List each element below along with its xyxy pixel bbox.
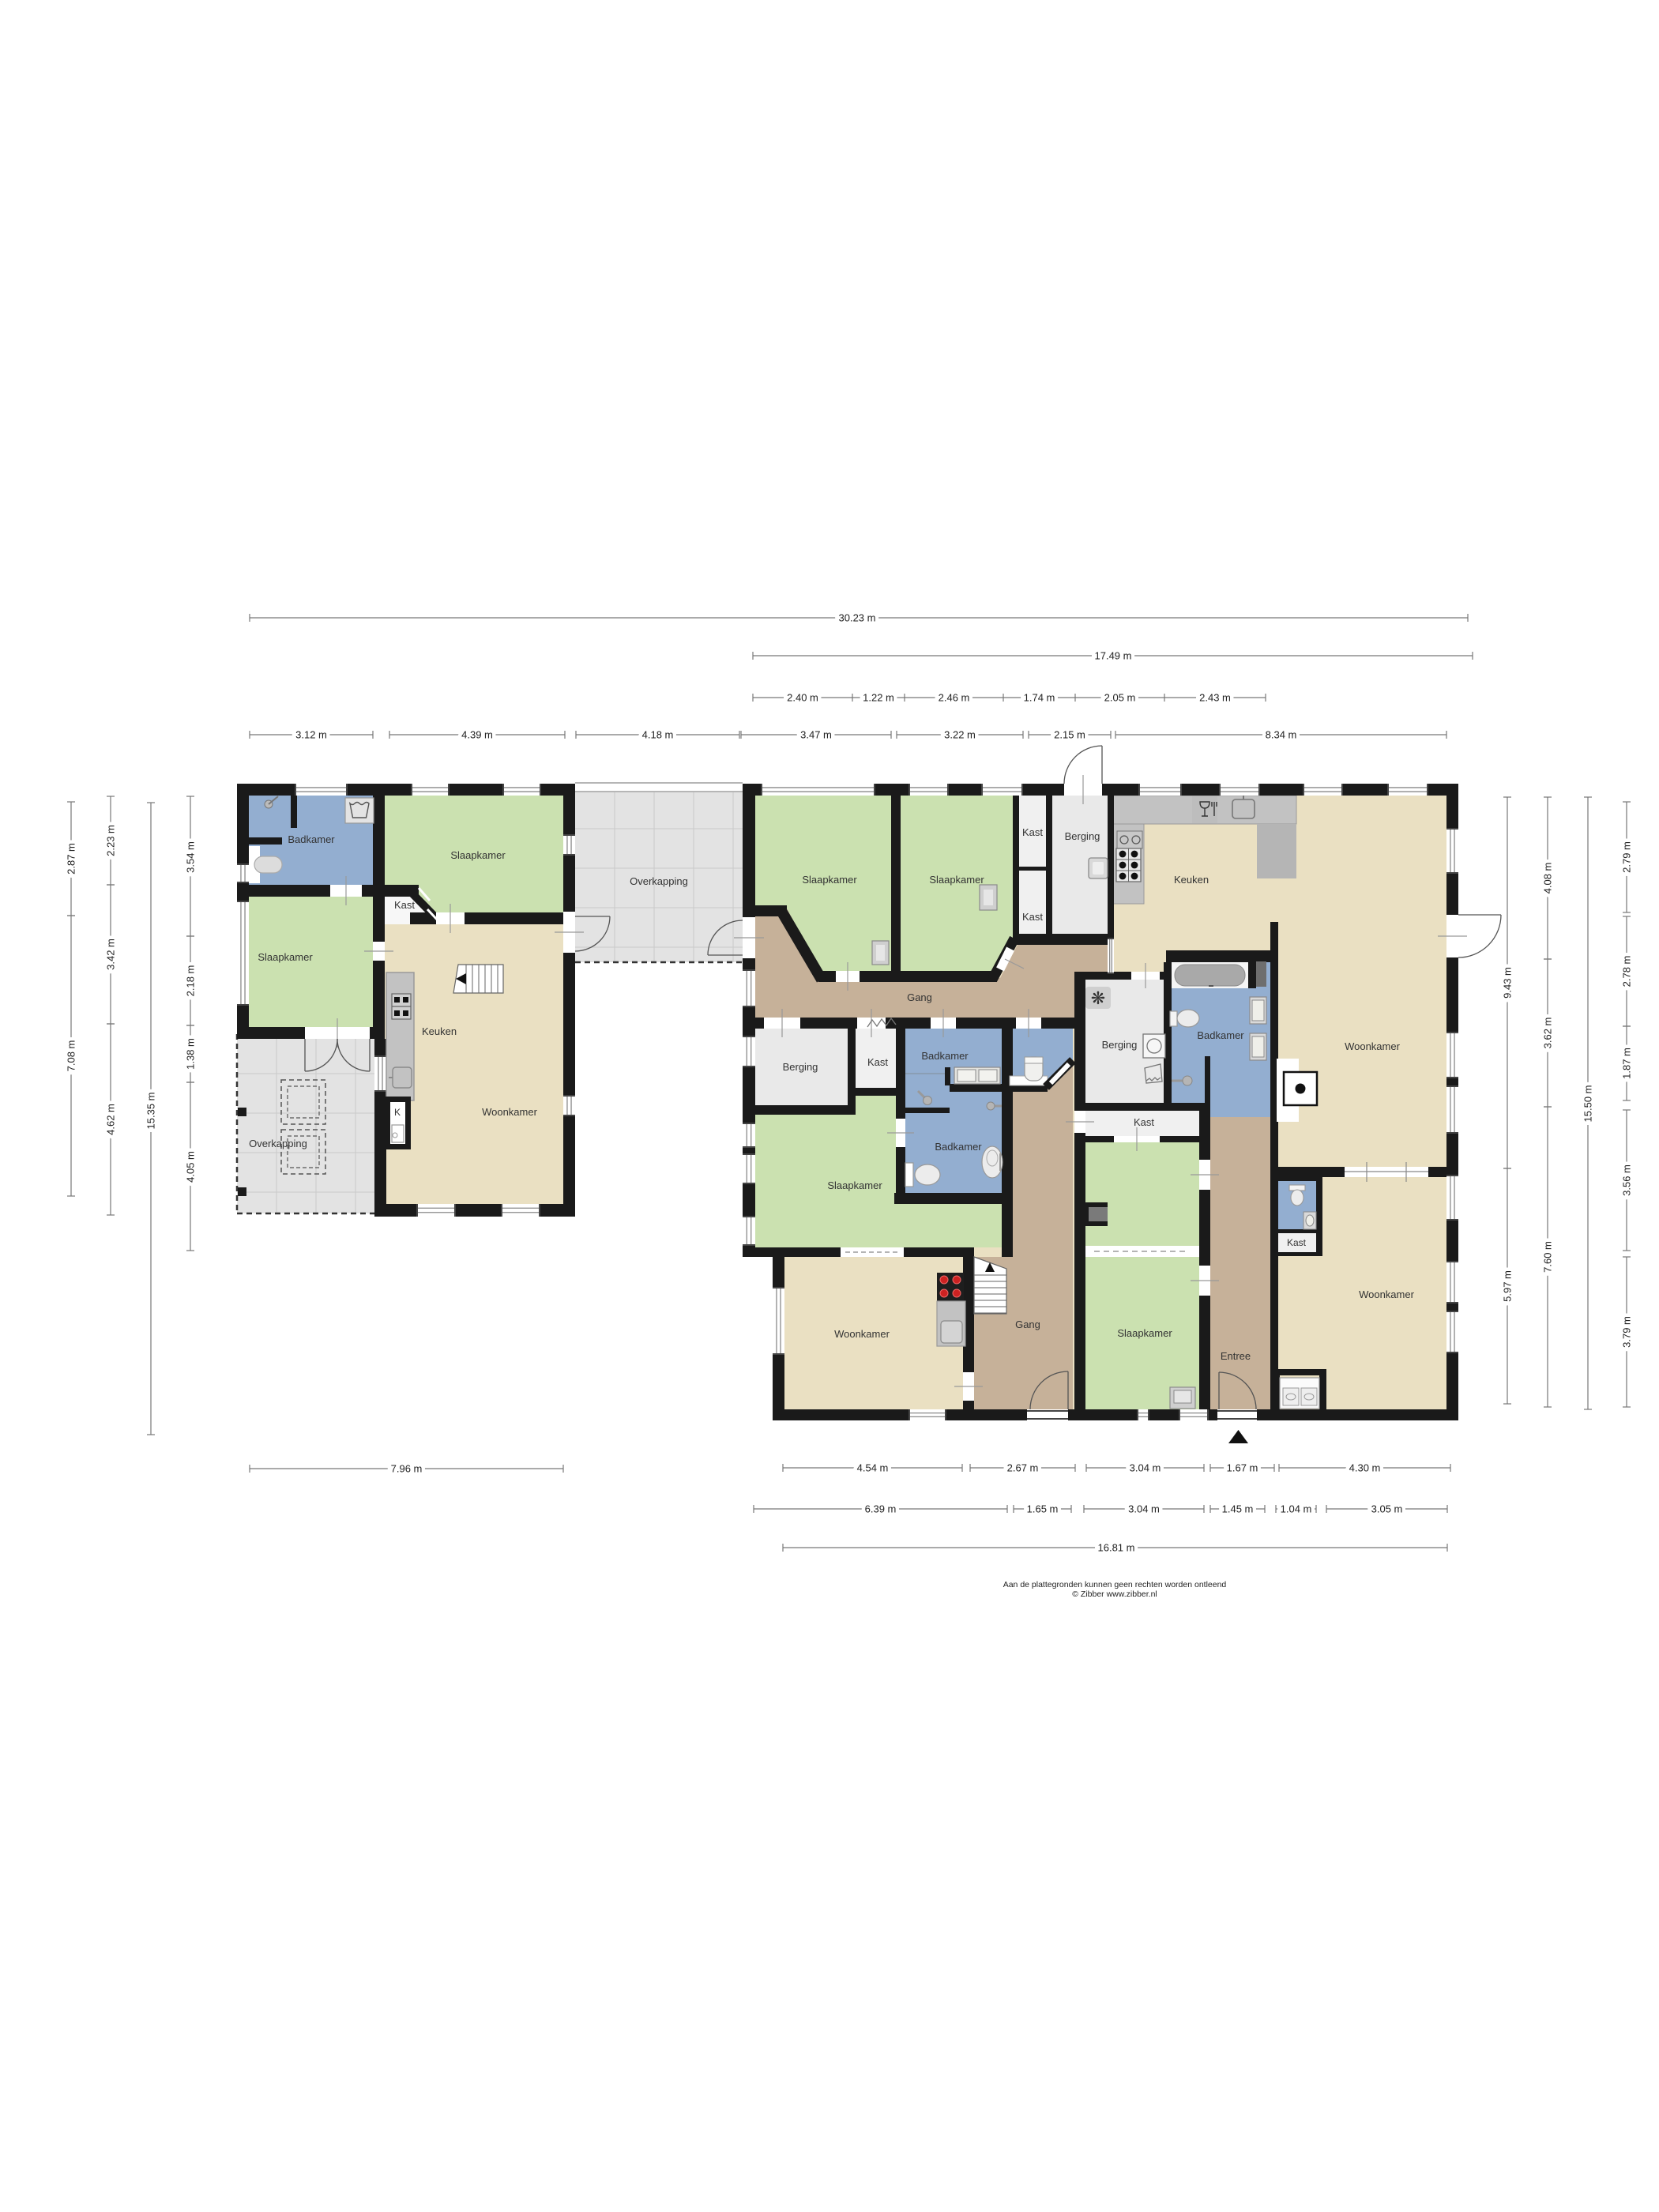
svg-text:Badkamer: Badkamer (288, 833, 335, 845)
svg-text:5.97 m: 5.97 m (1502, 1270, 1514, 1302)
svg-text:2.23 m: 2.23 m (105, 825, 117, 856)
svg-text:Entree: Entree (1221, 1350, 1251, 1362)
svg-text:Gang: Gang (1015, 1319, 1040, 1330)
svg-text:Slaapkamer: Slaapkamer (802, 874, 857, 886)
svg-text:1.67 m: 1.67 m (1227, 1462, 1258, 1474)
svg-text:Badkamer: Badkamer (1197, 1029, 1244, 1041)
svg-text:15.35 m: 15.35 m (145, 1093, 157, 1130)
svg-text:3.79 m: 3.79 m (1621, 1316, 1633, 1348)
svg-text:2.40 m: 2.40 m (787, 692, 818, 704)
svg-text:Badkamer: Badkamer (921, 1050, 969, 1062)
svg-text:2.87 m: 2.87 m (66, 843, 77, 875)
svg-text:Kast: Kast (1287, 1237, 1307, 1248)
svg-text:K: K (394, 1107, 401, 1118)
svg-text:4.18 m: 4.18 m (642, 729, 674, 741)
svg-text:4.08 m: 4.08 m (1542, 863, 1554, 894)
svg-text:7.60 m: 7.60 m (1542, 1241, 1554, 1273)
svg-text:1.45 m: 1.45 m (1222, 1503, 1254, 1515)
svg-text:Berging: Berging (783, 1061, 818, 1073)
svg-text:4.05 m: 4.05 m (185, 1151, 197, 1183)
svg-text:Woonkamer: Woonkamer (1345, 1040, 1401, 1052)
svg-text:8.34 m: 8.34 m (1266, 729, 1297, 741)
svg-text:1.87 m: 1.87 m (1621, 1048, 1633, 1079)
svg-text:3.04 m: 3.04 m (1128, 1503, 1160, 1515)
svg-text:3.56 m: 3.56 m (1621, 1164, 1633, 1196)
svg-text:Keuken: Keuken (422, 1025, 457, 1037)
svg-text:15.50 m: 15.50 m (1582, 1085, 1594, 1123)
svg-text:Berging: Berging (1102, 1039, 1138, 1051)
svg-text:Kast: Kast (867, 1056, 888, 1068)
svg-text:2.46 m: 2.46 m (939, 692, 970, 704)
svg-text:Kast: Kast (394, 899, 415, 911)
svg-text:Overkapping: Overkapping (249, 1138, 307, 1149)
svg-text:© Zibber www.zibber.nl: © Zibber www.zibber.nl (1072, 1589, 1157, 1599)
svg-text:3.22 m: 3.22 m (944, 729, 976, 741)
svg-text:Kast: Kast (1022, 911, 1043, 923)
svg-text:Badkamer: Badkamer (935, 1141, 982, 1153)
svg-text:3.62 m: 3.62 m (1542, 1018, 1554, 1049)
svg-text:4.54 m: 4.54 m (857, 1462, 889, 1474)
svg-text:1.04 m: 1.04 m (1281, 1503, 1312, 1515)
svg-text:Woonkamer: Woonkamer (482, 1106, 538, 1118)
svg-text:9.43 m: 9.43 m (1502, 967, 1514, 999)
svg-text:7.08 m: 7.08 m (66, 1040, 77, 1072)
svg-text:Aan de plattegronden kunnen ge: Aan de plattegronden kunnen geen rechten… (1003, 1580, 1227, 1589)
svg-text:1.22 m: 1.22 m (863, 692, 894, 704)
svg-text:1.74 m: 1.74 m (1024, 692, 1055, 704)
svg-text:Slaapkamer: Slaapkamer (1117, 1327, 1172, 1339)
svg-text:3.47 m: 3.47 m (800, 729, 832, 741)
svg-text:2.18 m: 2.18 m (185, 965, 197, 997)
svg-text:Slaapkamer: Slaapkamer (929, 874, 984, 886)
svg-text:30.23 m: 30.23 m (839, 612, 876, 624)
svg-text:2.05 m: 2.05 m (1104, 692, 1136, 704)
svg-text:17.49 m: 17.49 m (1095, 650, 1132, 662)
svg-text:1.38 m: 1.38 m (185, 1038, 197, 1070)
svg-text:3.54 m: 3.54 m (185, 841, 197, 873)
svg-text:❋: ❋ (1091, 988, 1105, 1008)
svg-text:Slaapkamer: Slaapkamer (450, 849, 506, 861)
svg-text:Kast: Kast (1022, 826, 1043, 838)
svg-text:7.96 m: 7.96 m (391, 1463, 423, 1475)
svg-text:4.39 m: 4.39 m (461, 729, 493, 741)
svg-text:2.78 m: 2.78 m (1621, 956, 1633, 987)
svg-text:2.79 m: 2.79 m (1621, 841, 1633, 873)
svg-text:Berging: Berging (1065, 830, 1100, 842)
svg-text:Overkapping: Overkapping (630, 875, 688, 887)
svg-text:4.30 m: 4.30 m (1349, 1462, 1381, 1474)
svg-text:Slaapkamer: Slaapkamer (258, 951, 313, 963)
svg-text:16.81 m: 16.81 m (1098, 1542, 1135, 1554)
svg-text:6.39 m: 6.39 m (865, 1503, 897, 1515)
svg-text:Gang: Gang (907, 991, 932, 1003)
svg-text:4.62 m: 4.62 m (105, 1104, 117, 1135)
svg-text:2.43 m: 2.43 m (1199, 692, 1231, 704)
svg-text:Keuken: Keuken (1174, 874, 1209, 886)
svg-text:3.04 m: 3.04 m (1130, 1462, 1161, 1474)
svg-text:3.05 m: 3.05 m (1371, 1503, 1403, 1515)
svg-text:2.15 m: 2.15 m (1054, 729, 1085, 741)
svg-text:3.12 m: 3.12 m (295, 729, 327, 741)
svg-text:3.42 m: 3.42 m (105, 939, 117, 970)
svg-text:Kast: Kast (1134, 1116, 1154, 1128)
svg-text:2.67 m: 2.67 m (1007, 1462, 1039, 1474)
svg-text:Woonkamer: Woonkamer (1359, 1288, 1415, 1300)
svg-text:1.65 m: 1.65 m (1027, 1503, 1059, 1515)
svg-text:Slaapkamer: Slaapkamer (827, 1179, 882, 1191)
svg-text:Woonkamer: Woonkamer (834, 1328, 890, 1340)
